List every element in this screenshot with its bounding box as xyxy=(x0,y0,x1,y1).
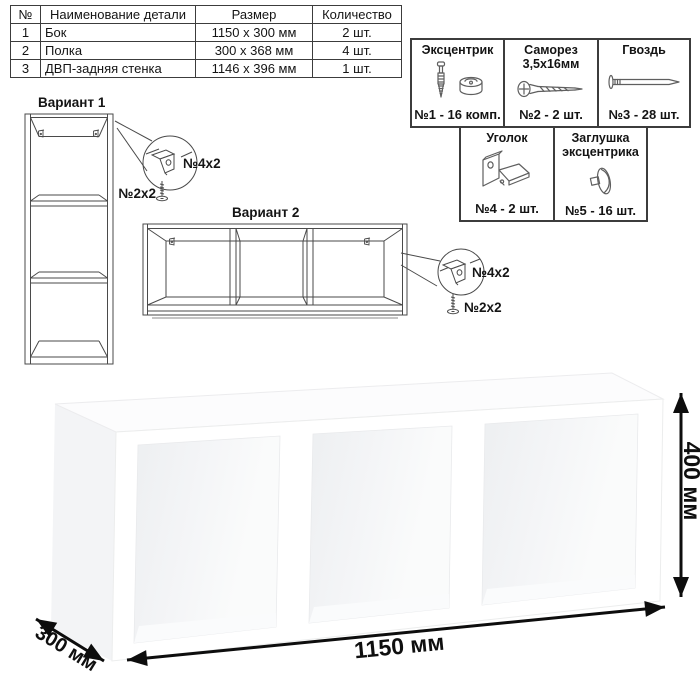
hardware-title: Заглушка эксцентрика xyxy=(555,131,646,160)
table-row: 2 Полка 300 х 368 мм 4 шт. xyxy=(11,42,402,60)
hardware-item-screw: Саморез 3,5х16мм №2 - 2 шт. xyxy=(503,38,599,128)
hardware-count: №1 - 16 комп. xyxy=(414,107,501,122)
shelf-3d-render xyxy=(51,373,663,661)
corner-bracket-icon xyxy=(461,145,553,200)
bracket-mark-icon xyxy=(39,130,45,137)
part-num: 2 xyxy=(11,42,41,60)
width-dimension: 1150 мм xyxy=(353,629,445,664)
cam-cover-icon xyxy=(555,160,646,202)
hardware-title: Уголок xyxy=(486,131,527,145)
nail-icon xyxy=(599,57,689,106)
variant1-callout: №4х2 №2х2 xyxy=(115,121,221,201)
hardware-item-cam-cover: Заглушка эксцентрика №5 - 16 шт. xyxy=(553,126,648,222)
corner-bracket-icon xyxy=(152,150,174,175)
variant1-bracket-label: №4х2 xyxy=(183,156,221,171)
bracket-mark-icon xyxy=(94,130,100,137)
col-header-num: № xyxy=(11,6,41,24)
variant2-bracket-label: №4х2 xyxy=(472,265,510,280)
part-num: 1 xyxy=(11,24,41,42)
part-qty: 2 шт. xyxy=(313,24,402,42)
hardware-item-nail: Гвоздь №3 - 28 шт. xyxy=(597,38,691,128)
variant2-screw-label: №2х2 xyxy=(464,300,502,315)
variant2-title: Вариант 2 xyxy=(232,205,299,220)
variant1-cabinet-drawing xyxy=(25,114,113,364)
variant1-screw-label: №2х2 xyxy=(118,186,156,201)
table-row: 3 ДВП-задняя стенка 1146 х 396 мм 1 шт. xyxy=(11,60,402,78)
hardware-count: №4 - 2 шт. xyxy=(475,201,539,216)
col-header-qty: Количество xyxy=(313,6,402,24)
part-size: 1146 х 396 мм xyxy=(196,60,313,78)
table-header-row: № Наименование детали Размер Количество xyxy=(11,6,402,24)
part-name: ДВП-задняя стенка xyxy=(41,60,196,78)
screw-icon xyxy=(505,72,597,106)
hardware-count: №2 - 2 шт. xyxy=(519,107,583,122)
hardware-panel-row1: Эксцентрик xyxy=(410,38,691,128)
hardware-title: Гвоздь xyxy=(622,43,666,57)
variant2-cabinet-drawing xyxy=(143,224,407,318)
parts-table: № Наименование детали Размер Количество … xyxy=(10,5,402,78)
variant2-callout: №4х2 №2х2 xyxy=(401,249,510,315)
col-header-size: Размер xyxy=(196,6,313,24)
variant1-title: Вариант 1 xyxy=(38,95,105,110)
part-num: 3 xyxy=(11,60,41,78)
screw-icon xyxy=(448,294,459,314)
part-name: Бок xyxy=(41,24,196,42)
assembly-instruction-sheet: №4х2 №2х2 №4х2 №2х2 xyxy=(0,0,700,690)
height-dimension: 400 мм xyxy=(679,442,700,521)
part-size: 300 х 368 мм xyxy=(196,42,313,60)
hardware-title: Эксцентрик xyxy=(422,43,494,57)
part-qty: 4 шт. xyxy=(313,42,402,60)
hardware-count: №5 - 16 шт. xyxy=(565,203,636,218)
table-row: 1 Бок 1150 х 300 мм 2 шт. xyxy=(11,24,402,42)
hardware-item-corner-bracket: Уголок №4 - 2 шт. xyxy=(459,126,555,222)
screw-icon xyxy=(157,181,168,201)
hardware-count: №3 - 28 шт. xyxy=(608,107,679,122)
col-header-name: Наименование детали xyxy=(41,6,196,24)
hardware-item-eccentric: Эксцентрик xyxy=(410,38,505,128)
part-name: Полка xyxy=(41,42,196,60)
part-size: 1150 х 300 мм xyxy=(196,24,313,42)
hardware-panel-row2: Уголок №4 - 2 шт. Заглушка эксцентрика xyxy=(459,126,648,222)
part-qty: 1 шт. xyxy=(313,60,402,78)
hardware-title: Саморез 3,5х16мм xyxy=(505,43,597,72)
cam-dowel-icon xyxy=(412,57,503,106)
corner-bracket-icon xyxy=(443,260,465,285)
